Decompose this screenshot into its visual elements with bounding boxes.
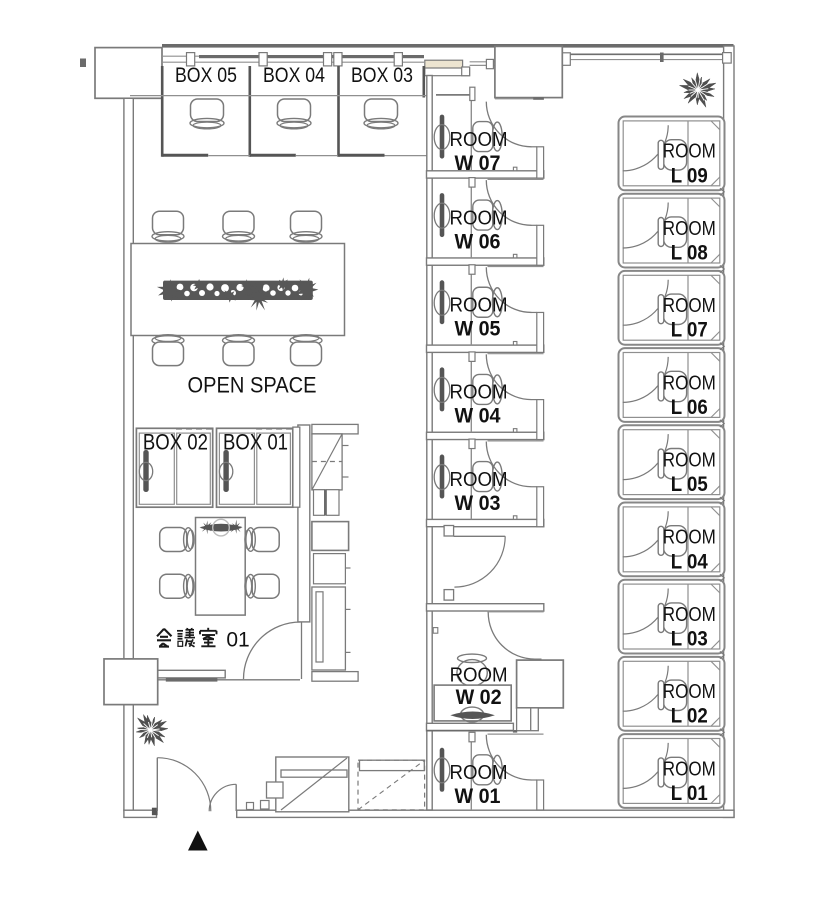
svg-text:BOX 01: BOX 01 bbox=[223, 430, 288, 455]
svg-text:ROOM: ROOM bbox=[663, 450, 716, 472]
svg-text:ROOM: ROOM bbox=[663, 527, 716, 549]
svg-text:ROOM: ROOM bbox=[450, 382, 508, 404]
svg-text:BOX 02: BOX 02 bbox=[143, 430, 208, 455]
svg-text:L 05: L 05 bbox=[671, 473, 708, 496]
svg-text:ROOM: ROOM bbox=[663, 758, 716, 780]
svg-text:ROOM: ROOM bbox=[450, 294, 508, 316]
svg-text:W 02: W 02 bbox=[456, 686, 502, 709]
svg-text:W 06: W 06 bbox=[455, 230, 501, 253]
svg-text:L 01: L 01 bbox=[671, 782, 708, 805]
svg-text:ROOM: ROOM bbox=[450, 129, 508, 151]
svg-text:L 02: L 02 bbox=[671, 705, 708, 728]
svg-text:OPEN SPACE: OPEN SPACE bbox=[188, 373, 317, 398]
svg-text:ROOM: ROOM bbox=[450, 207, 508, 229]
svg-text:BOX 03: BOX 03 bbox=[351, 64, 413, 87]
svg-text:ROOM: ROOM bbox=[450, 762, 508, 784]
svg-text:L 06: L 06 bbox=[671, 396, 708, 419]
svg-text:BOX 05: BOX 05 bbox=[175, 64, 237, 87]
svg-text:ROOM: ROOM bbox=[663, 141, 716, 163]
svg-text:L 09: L 09 bbox=[671, 164, 708, 187]
svg-text:W 01: W 01 bbox=[455, 785, 501, 808]
svg-text:W 03: W 03 bbox=[455, 492, 501, 515]
svg-text:ROOM: ROOM bbox=[450, 469, 508, 491]
svg-text:01: 01 bbox=[226, 629, 249, 652]
svg-text:ROOM: ROOM bbox=[663, 681, 716, 703]
svg-text:ROOM: ROOM bbox=[663, 295, 716, 317]
svg-text:ROOM: ROOM bbox=[663, 604, 716, 626]
svg-text:L 08: L 08 bbox=[671, 242, 708, 265]
svg-text:W 07: W 07 bbox=[455, 152, 501, 175]
svg-text:L 07: L 07 bbox=[671, 319, 708, 342]
svg-text:ROOM: ROOM bbox=[663, 218, 716, 240]
svg-text:L 04: L 04 bbox=[671, 550, 708, 573]
svg-text:W 05: W 05 bbox=[455, 317, 501, 340]
svg-text:BOX 04: BOX 04 bbox=[263, 64, 325, 87]
svg-text:L 03: L 03 bbox=[671, 628, 708, 651]
svg-text:ROOM: ROOM bbox=[450, 665, 508, 687]
svg-text:ROOM: ROOM bbox=[663, 372, 716, 394]
svg-text:W 04: W 04 bbox=[455, 405, 501, 428]
